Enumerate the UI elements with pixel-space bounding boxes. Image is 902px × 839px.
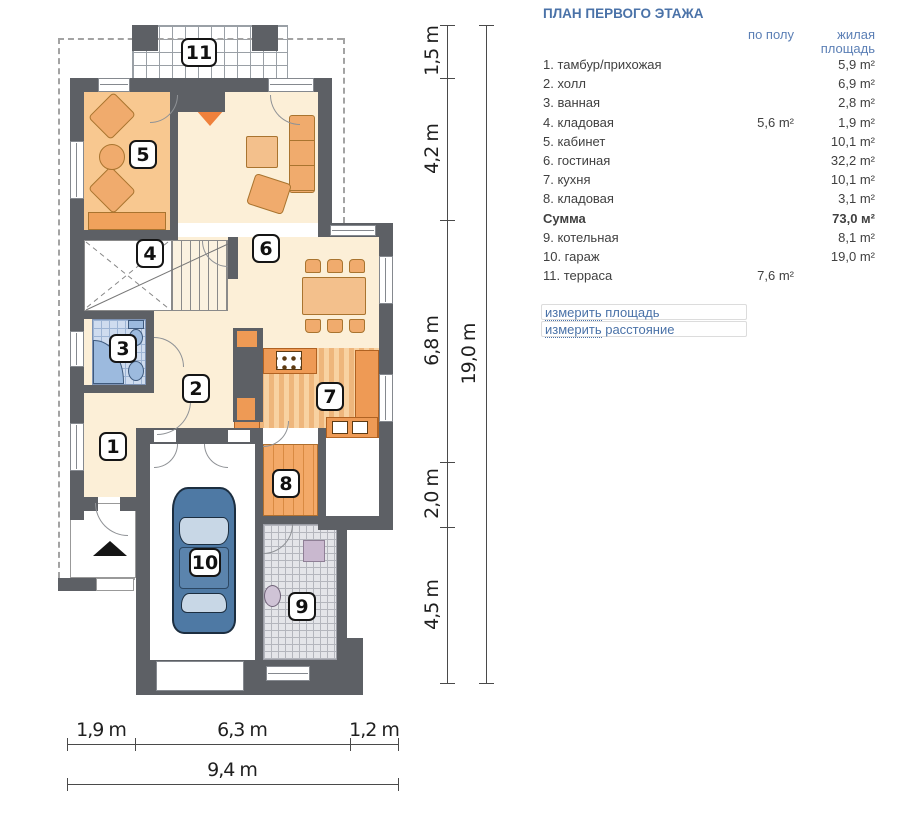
floor-area: 7,6 m² (698, 268, 794, 283)
room-label-1: 1 (99, 432, 127, 461)
room-name: 10. гараж (543, 249, 600, 264)
legend-row: 2. холл6,9 m² (543, 76, 890, 93)
living-area: 32,2 m² (769, 153, 875, 168)
room-name: 6. гостиная (543, 153, 610, 168)
column-header-living-2: площадь (543, 41, 875, 56)
living-area: 10,1 m² (769, 134, 875, 149)
legend-row-sum: Сумма73,0 м² (543, 211, 890, 228)
room-label-4: 4 (136, 239, 164, 268)
room-label-3: 3 (109, 334, 137, 363)
room-name: 8. кладовая (543, 191, 614, 206)
measure-area-link[interactable]: измерить площадь (541, 304, 747, 320)
legend-panel: ПЛАН ПЕРВОГО ЭТАЖА по полу жилая площадь… (0, 0, 902, 839)
room-label-8: 8 (272, 469, 300, 498)
measure-distance-link-word[interactable]: измерить (545, 322, 602, 338)
legend-row: 5. кабинет10,1 m² (543, 134, 890, 151)
sum-label: Сумма (543, 211, 586, 226)
living-area: 6,9 m² (769, 76, 875, 91)
room-label-6: 6 (252, 234, 280, 263)
legend-row: 8. кладовая3,1 m² (543, 191, 890, 208)
living-area: 8,1 m² (769, 230, 875, 245)
floor-plan-page: 1 2 3 4 5 6 7 8 9 10 11 1,5 m 4,2 m 6,8 … (0, 0, 902, 839)
column-header-living-1: жилая (543, 27, 875, 42)
sum-value: 73,0 м² (769, 211, 875, 226)
legend-row: 3. ванная2,8 m² (543, 95, 890, 112)
room-name: 4. кладовая (543, 115, 614, 130)
room-label-2: 2 (182, 374, 210, 403)
legend-row: 6. гостиная32,2 m² (543, 153, 890, 170)
measure-area-link-rest[interactable]: площадь (602, 305, 660, 320)
room-name: 1. тамбур/прихожая (543, 57, 662, 72)
legend-row: 1. тамбур/прихожая5,9 m² (543, 57, 890, 74)
room-name: 3. ванная (543, 95, 600, 110)
living-area: 2,8 m² (769, 95, 875, 110)
living-area: 19,0 m² (769, 249, 875, 264)
living-area: 3,1 m² (769, 191, 875, 206)
living-area: 10,1 m² (769, 172, 875, 187)
room-name: 7. кухня (543, 172, 591, 187)
legend-row: 11. терраса7,6 m² (543, 268, 890, 285)
living-area: 1,9 m² (769, 115, 875, 130)
legend-row: 4. кладовая5,6 m²1,9 m² (543, 115, 890, 132)
room-label-11: 11 (181, 38, 217, 67)
room-label-7: 7 (316, 382, 344, 411)
measure-area-link-word[interactable]: измерить (545, 305, 602, 321)
room-label-9: 9 (288, 592, 316, 621)
measure-distance-link[interactable]: измерить расстояние (541, 321, 747, 337)
living-area: 5,9 m² (769, 57, 875, 72)
legend-row: 7. кухня10,1 m² (543, 172, 890, 189)
room-name: 9. котельная (543, 230, 619, 245)
room-name: 11. терраса (543, 268, 612, 283)
room-name: 2. холл (543, 76, 586, 91)
page-title: ПЛАН ПЕРВОГО ЭТАЖА (543, 6, 703, 21)
room-label-10: 10 (189, 548, 221, 577)
measure-distance-link-rest[interactable]: расстояние (602, 322, 675, 337)
legend-row: 9. котельная8,1 m² (543, 230, 890, 247)
legend-row: 10. гараж19,0 m² (543, 249, 890, 266)
room-label-5: 5 (129, 140, 157, 169)
room-name: 5. кабинет (543, 134, 605, 149)
